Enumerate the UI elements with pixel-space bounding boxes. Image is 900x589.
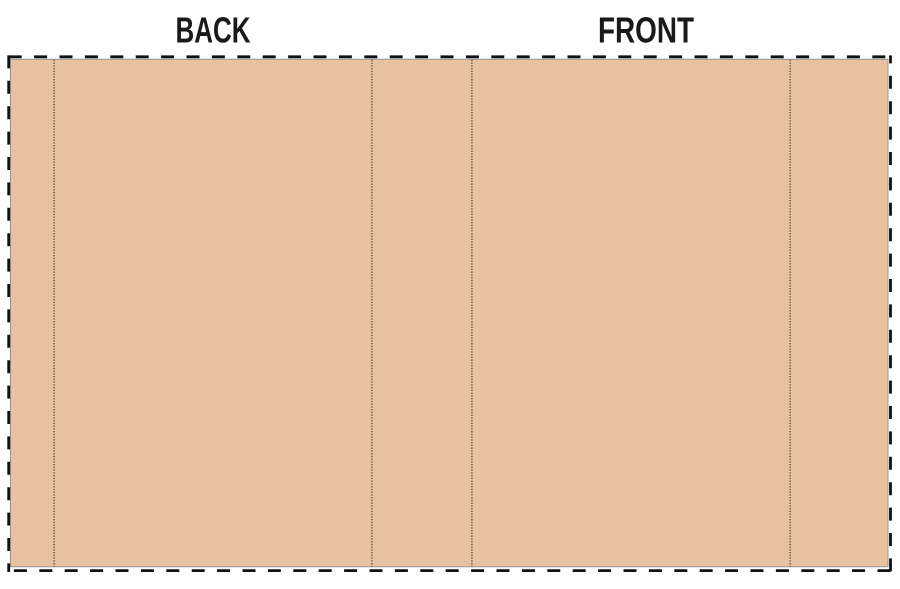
svg-text:FRONT: FRONT (598, 10, 694, 51)
svg-text:BACK: BACK (176, 10, 251, 51)
